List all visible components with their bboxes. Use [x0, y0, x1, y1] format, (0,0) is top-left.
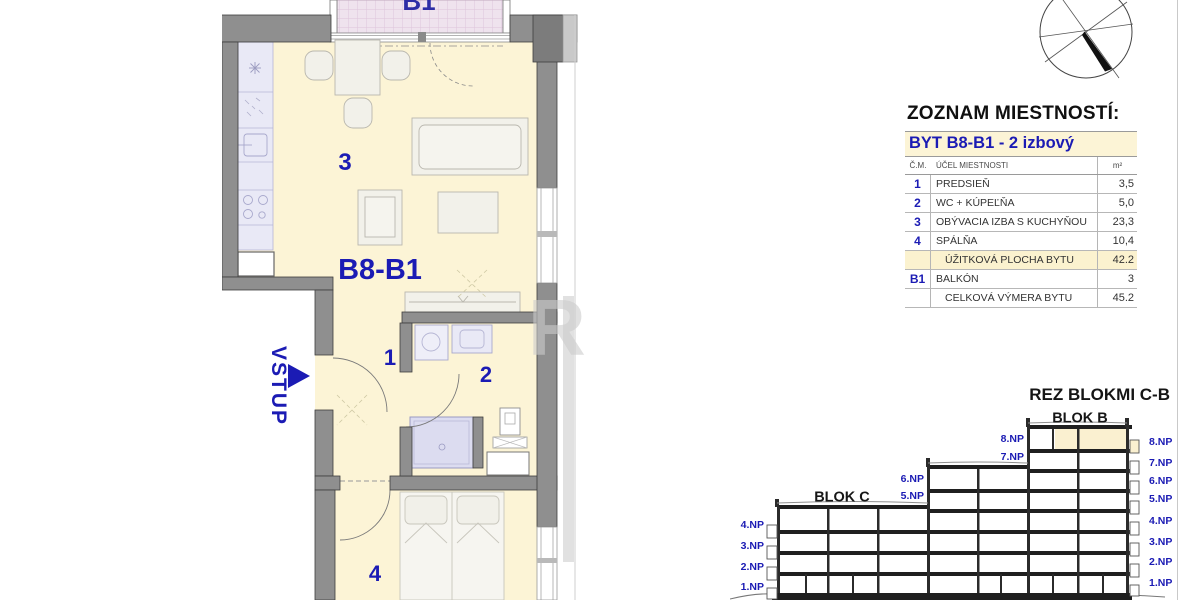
balcony: B1 [330, 0, 510, 42]
level-right: 5.NP [1149, 493, 1172, 505]
room-num: 4 [905, 232, 931, 250]
entrance-label: VSTUP [267, 346, 290, 426]
room-name: PREDSIEŇ [931, 178, 1097, 190]
floor-plan: B1 [222, 0, 578, 600]
building-section: REZ BLOKMI C-B BLOK B BLOK C 4.NP 3.NP 2… [730, 380, 1200, 600]
level-right: 1.NP [1149, 577, 1172, 589]
room-num: 1 [905, 175, 931, 193]
shower [410, 417, 473, 468]
level-right: 4.NP [1149, 515, 1172, 527]
entrance-arrow-icon [288, 364, 310, 388]
washing-machine [415, 325, 448, 360]
col-num: Č.M. [905, 161, 931, 170]
room-area: 42.2 [1097, 251, 1137, 269]
room-area: 5,0 [1097, 194, 1137, 212]
room-name: BALKÓN [931, 273, 1097, 285]
room-name: SPÁLŇA [931, 235, 1097, 247]
room-area: 23,3 [1097, 213, 1137, 231]
room-num: 3 [905, 213, 931, 231]
table-row-total-usable: ÚŽITKOVÁ PLOCHA BYTU 42.2 [905, 251, 1137, 270]
room-label-hall: 1 [384, 345, 396, 370]
room-area: 10,4 [1097, 232, 1137, 250]
chair [305, 51, 333, 80]
level-left: 3.NP [741, 540, 764, 552]
compass-icon [1032, 0, 1140, 84]
double-bed [400, 492, 504, 600]
toilet [500, 408, 520, 435]
section-title: REZ BLOKMI C-B [1029, 385, 1170, 404]
compass-needle [1082, 32, 1112, 72]
table-row: B1 BALKÓN 3 [905, 270, 1137, 289]
kitchen-counter [238, 42, 273, 250]
room-num: B1 [905, 270, 931, 288]
level-left: 1.NP [741, 581, 764, 593]
page-divider [1177, 0, 1178, 600]
room-name: WC + KÚPEĽŇA [931, 197, 1097, 209]
dining-table [335, 40, 380, 95]
table-row: 4 SPÁLŇA 10,4 [905, 232, 1137, 251]
fridge-icon [249, 62, 261, 74]
level-left: 2.NP [741, 561, 764, 573]
room-list-title: ZOZNAM MIESTNOSTÍ: [907, 103, 1137, 125]
level-upper: 7.NP [1001, 451, 1024, 463]
table-row: 3 OBÝVACIA IZBA S KUCHYŇOU 23,3 [905, 213, 1137, 232]
room-num [905, 289, 931, 307]
level-left: 4.NP [741, 519, 764, 531]
blok-b-label: BLOK B [1052, 411, 1108, 427]
pillow [457, 496, 499, 524]
room-name: ÚŽITKOVÁ PLOCHA BYTU [931, 254, 1097, 266]
room-area: 3 [1097, 270, 1137, 288]
level-right: 8.NP [1149, 436, 1172, 448]
balcony-label: B1 [402, 0, 435, 16]
table-row: 2 WC + KÚPEĽŇA 5,0 [905, 194, 1137, 213]
level-right: 2.NP [1149, 556, 1172, 568]
table-row-total: CELKOVÁ VÝMERA BYTU 45.2 [905, 289, 1137, 308]
room-name: CELKOVÁ VÝMERA BYTU [931, 292, 1097, 304]
watermark-letter: R [528, 288, 588, 368]
room-list-header: Č.M. ÚČEL MIESTNOSTI m² [905, 157, 1137, 175]
room-name: OBÝVACIA IZBA S KUCHYŇOU [931, 216, 1097, 228]
level-mid: 6.NP [901, 473, 924, 485]
col-purpose: ÚČEL MIESTNOSTI [931, 161, 1097, 170]
niche [238, 252, 274, 276]
room-area: 3,5 [1097, 175, 1137, 193]
col-area: m² [1097, 157, 1137, 174]
chair [382, 51, 410, 80]
level-right: 7.NP [1149, 457, 1172, 469]
table-row: 1 PREDSIEŇ 3,5 [905, 175, 1137, 194]
room-area: 45.2 [1097, 289, 1137, 307]
chair [344, 98, 372, 128]
coffee-table [438, 192, 498, 233]
room-list: ZOZNAM MIESTNOSTÍ: BYT B8-B1 - 2 izbový … [905, 103, 1137, 308]
level-right: 3.NP [1149, 536, 1172, 548]
level-right: 6.NP [1149, 475, 1172, 487]
highlighted-flat [1055, 429, 1127, 449]
apartment-label: B8-B1 [338, 254, 422, 286]
level-upper: 8.NP [1001, 433, 1024, 445]
room-label-living: 3 [338, 149, 351, 176]
shaft [487, 452, 529, 475]
sideboard [405, 292, 520, 313]
room-num: 2 [905, 194, 931, 212]
room-label-bath: 2 [480, 362, 492, 387]
level-mid: 5.NP [901, 490, 924, 502]
room-num [905, 251, 931, 269]
bath-sink [452, 325, 492, 353]
drawing-sheet: B1 [0, 0, 1200, 600]
room-label-bedroom: 4 [369, 561, 382, 586]
apartment-heading: BYT B8-B1 - 2 izbový [905, 131, 1137, 157]
pillow [405, 496, 447, 524]
blok-c-label: BLOK C [814, 490, 870, 506]
